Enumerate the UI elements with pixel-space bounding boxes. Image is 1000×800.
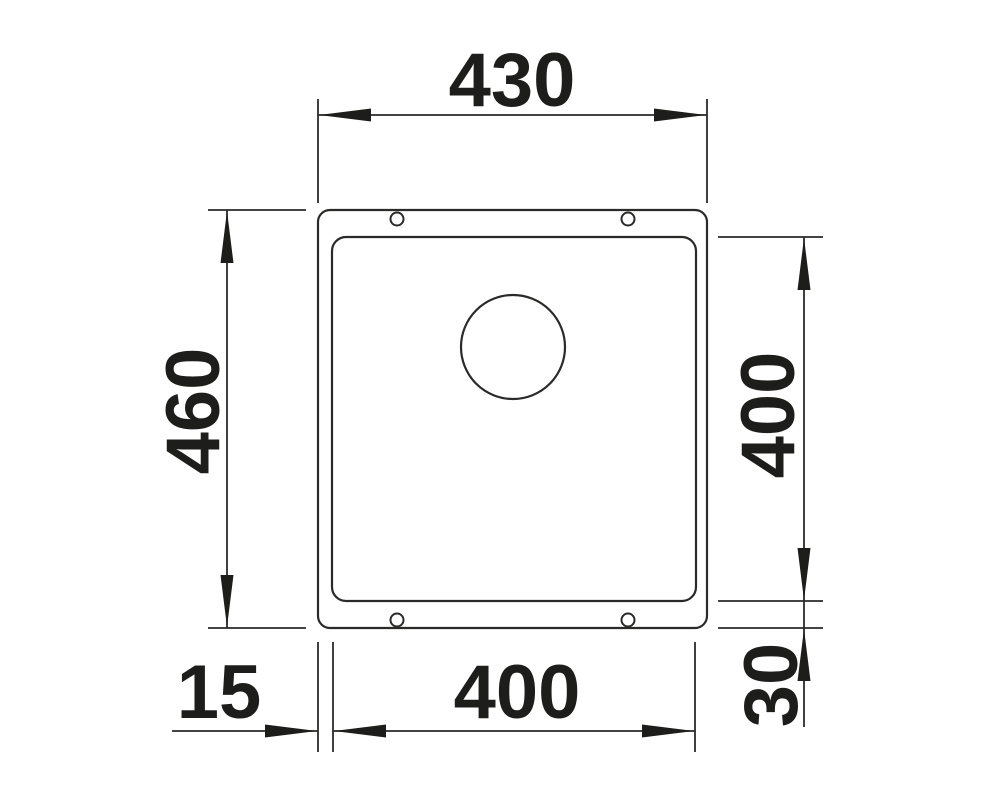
dimension-label: 430 <box>449 38 576 123</box>
dimension-overall-depth-left: 460 <box>151 210 306 628</box>
dimension-label: 400 <box>454 650 581 735</box>
dimension-label: 400 <box>726 352 811 479</box>
dimension-label: 460 <box>151 348 236 475</box>
arrowhead-up-icon <box>221 211 234 263</box>
mounting-hole-top-left <box>391 213 404 226</box>
dimension-label: 30 <box>729 643 814 728</box>
dimension-label: 15 <box>177 650 262 735</box>
mounting-hole-bottom-right <box>622 614 635 627</box>
sink-bowl-inner-edge <box>332 237 696 601</box>
arrowhead-right-icon <box>265 725 317 738</box>
dimension-flange-offset-bottom-right: 30 <box>718 601 823 727</box>
dimension-bowl-depth-right: 400 <box>718 237 823 601</box>
arrowhead-up-icon <box>798 238 811 290</box>
drain-hole <box>461 295 565 399</box>
mounting-hole-top-right <box>622 213 635 226</box>
sink-outer-edge <box>318 210 707 628</box>
sink-outline-group <box>318 210 707 628</box>
dimension-bowl-width-bottom: 400 <box>333 642 695 752</box>
arrowhead-left-icon <box>319 109 371 122</box>
arrowhead-right-icon <box>642 725 694 738</box>
mounting-hole-bottom-left <box>391 614 404 627</box>
dimension-flange-offset-bottom-left: 15 <box>172 642 318 752</box>
dimension-overall-width-top: 430 <box>318 38 707 203</box>
technical-drawing-page: 430 460 400 30 <box>0 0 1000 800</box>
sink-technical-drawing: 430 460 400 30 <box>0 0 1000 800</box>
arrowhead-down-icon <box>798 548 811 600</box>
arrowhead-right-icon <box>654 109 706 122</box>
arrowhead-left-icon <box>334 725 386 738</box>
arrowhead-down-icon <box>221 575 234 627</box>
